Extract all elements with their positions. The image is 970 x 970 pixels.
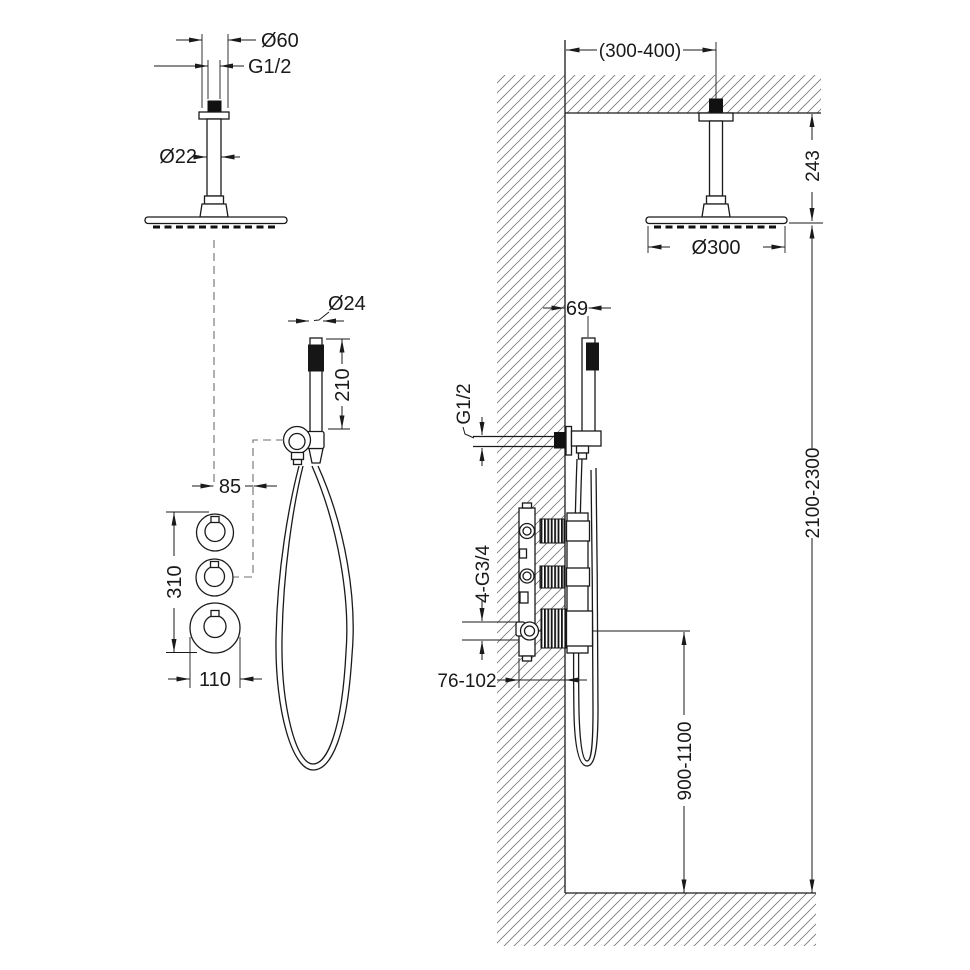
thermostat-knobs [190,514,240,653]
port-2-inner [523,572,531,580]
port-1-inner [523,527,531,535]
ceiling-section-hatch [565,75,821,113]
dim-label-head-diameter: Ø60 [261,30,299,52]
arm-joint-installed [707,196,726,204]
drawing-canvas: Ø60 G1/2 Ø22 [0,0,970,970]
connection-dashed-lines [232,440,284,577]
holder-bracket-installed [572,431,602,446]
knob-1-inner [205,522,225,542]
dim-head-diameter-installed: Ø300 [648,226,785,259]
concealed-valve-body [516,503,690,661]
knob-3-tab [211,611,219,617]
knob-2-inner [205,567,225,587]
dim-label-head-height-from-floor: 2100-2300 [803,448,824,539]
hose-nut [577,446,589,453]
shower-arm-installed [710,121,723,196]
dim-hand-shower-length: 210 [326,339,354,429]
cartridge-1 [540,519,564,543]
arm-joint [205,196,224,204]
head-cone [200,204,228,217]
installation-view: (300-400) Ø300 243 2100-2300 [437,40,824,946]
building-section [497,40,821,946]
head-disc [145,217,287,224]
dim-label-valve-knob-diameter: 110 [199,669,231,691]
thread-stub [208,101,221,112]
shower-hose-outer [276,466,353,770]
dim-ceiling-to-head: 243 [789,114,824,223]
dim-arm-diameter: Ø22 [159,146,240,168]
ceiling-flange-installed [699,113,733,121]
dim-label-outlet-thread: G1/2 [454,383,475,424]
ceiling-flange [199,112,229,119]
head-cone-installed [702,204,730,217]
hose-nut-2 [579,453,587,459]
installed-ceiling-shower-head [646,42,787,227]
dim-label-head-diameter-installed: Ø300 [692,237,741,259]
product-view: Ø60 G1/2 Ø22 [145,30,366,770]
plate-screw-1 [520,549,527,558]
dim-label-valve-group-height: 310 [164,565,186,598]
dim-head-thread: G1/2 [154,56,291,99]
dim-label-valve-height-from-floor: 900-1100 [675,722,696,801]
port-3-inner [525,626,535,636]
dim-hand-shower-offset: 85 [192,476,277,498]
dim-head-height-from-floor: 2100-2300 [803,226,824,893]
dim-label-head-thread: G1/2 [248,56,291,78]
hand-shower [276,338,353,770]
knob-2-tab [211,562,219,568]
hand-shower-grip-installed [587,343,599,370]
plate-tab-bottom [523,656,532,661]
bracket-nut-2 [294,460,302,465]
dim-label-valve-connections: 4-G3/4 [473,545,494,604]
knob-1-tab [211,517,219,523]
dim-hand-shower-diameter: Ø24 [288,293,366,321]
dim-head-distance-from-wall: (300-400) [566,41,716,62]
cartridge-2 [540,566,564,588]
plate-screw-2 [520,592,528,603]
dim-label-arm-diameter: Ø22 [159,146,197,168]
knob-3-inner [204,616,226,638]
dim-valve-height-from-floor: 900-1100 [675,632,696,893]
hose-connector [309,449,323,464]
cartridge-1-cap [567,521,590,541]
dim-label-hand-shower-distance-from-wall: 69 [566,298,588,320]
wall-elbow [555,433,567,449]
cartridge-3 [541,609,566,648]
dim-label-hand-shower-diameter: Ø24 [328,293,366,315]
dim-label-hand-shower-offset: 85 [219,476,241,498]
wall-bracket-ring-inner [289,434,305,450]
shower-system-technical-drawing: Ø60 G1/2 Ø22 [0,0,970,970]
cartridge-3-cap [567,611,593,646]
head-disc-installed [646,217,787,224]
plate-tab-top [523,503,532,508]
floor-section-hatch [565,893,816,946]
dim-label-hand-shower-length: 210 [332,368,354,401]
dim-outlet-thread: G1/2 [454,383,482,466]
dim-label-head-distance-from-wall: (300-400) [599,41,681,62]
dim-label-ceiling-to-head: 243 [803,150,824,182]
escutcheon [566,427,572,456]
shower-hose-inner [282,466,347,764]
hand-shower-grip [309,345,324,371]
bracket-nut [292,453,304,460]
thread-stub-installed [710,99,723,113]
shower-arm [207,119,221,196]
cartridge-2-cap [567,568,590,586]
dim-label-recessed-depth: 76-102 [437,671,496,692]
